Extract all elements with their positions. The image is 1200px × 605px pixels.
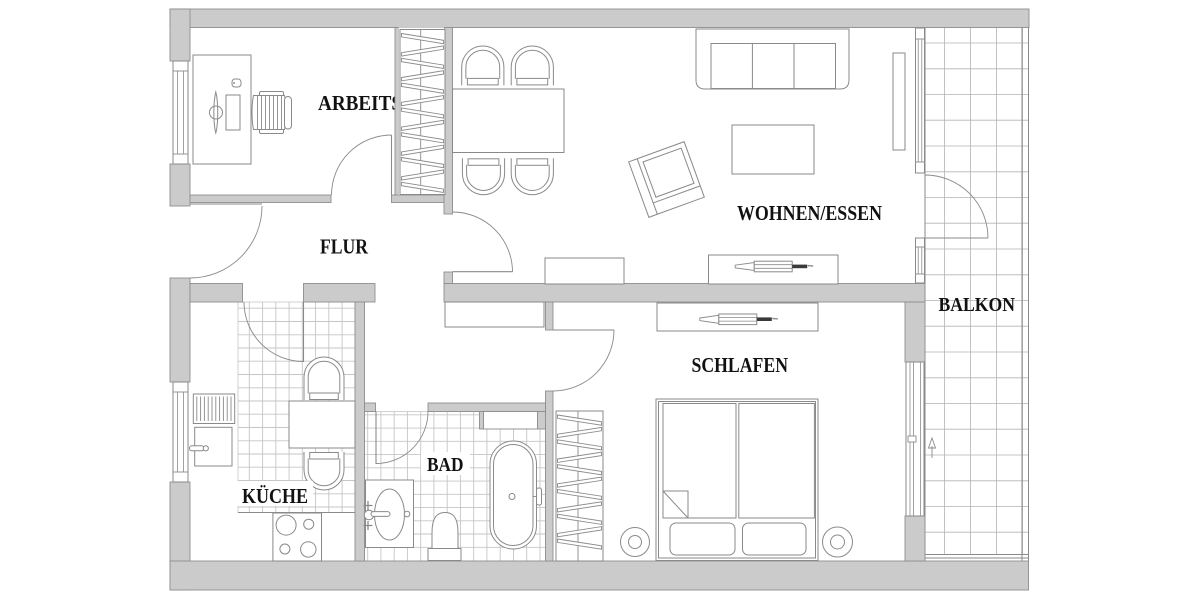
- svg-text:BALKON: BALKON: [939, 294, 1016, 316]
- svg-text:BAD: BAD: [427, 454, 464, 476]
- svg-text:ARBEITS: ARBEITS: [318, 91, 402, 115]
- svg-text:SCHLAFEN: SCHLAFEN: [692, 353, 789, 377]
- svg-text:WOHNEN/ESSEN: WOHNEN/ESSEN: [737, 201, 882, 225]
- svg-text:KÜCHE: KÜCHE: [242, 484, 308, 508]
- svg-text:FLUR: FLUR: [320, 235, 369, 259]
